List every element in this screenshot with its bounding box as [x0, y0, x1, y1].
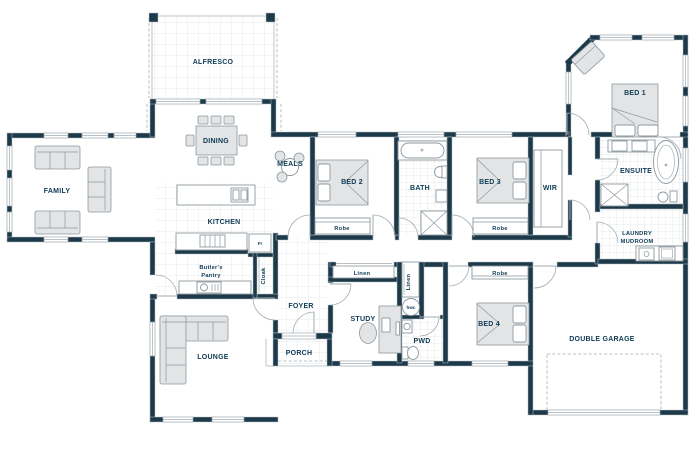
monitor	[396, 322, 400, 335]
label-linen-hall: Linen	[354, 271, 371, 277]
alfresco-tiles	[152, 16, 274, 100]
label-wir: WIR	[543, 185, 557, 192]
floor-plan-drawing: ALFRESCO DINING FAMILY MEALS KITCHEN But…	[0, 0, 690, 456]
pillow	[513, 162, 526, 179]
toilet	[408, 347, 419, 360]
label-study: STUDY	[351, 316, 376, 323]
chair	[224, 157, 234, 165]
office-chair	[360, 323, 377, 344]
label-double-garage: DOUBLE GARAGE	[569, 336, 635, 343]
label-laundry-2: MUDROOM	[621, 239, 654, 245]
chair	[198, 157, 208, 165]
label-robe-bed3: Robe	[492, 226, 508, 232]
label-bed3: BED 3	[479, 179, 501, 186]
pillow	[513, 306, 526, 323]
label-butlers-pantry-1: Butler's	[199, 265, 222, 271]
label-robe-bed2: Robe	[334, 226, 350, 232]
alfresco-post	[149, 13, 158, 22]
label-ensuite: ENSUITE	[620, 168, 652, 175]
laundry-sink	[639, 248, 654, 260]
pillow	[513, 325, 526, 342]
armchair	[571, 41, 605, 75]
bed2-door	[373, 215, 395, 237]
label-bed4: BED 4	[478, 321, 500, 328]
chair	[277, 172, 287, 182]
label-cloak: Cloak	[261, 267, 267, 285]
label-meals: MEALS	[277, 161, 303, 168]
label-linen-nook: Linen	[406, 273, 412, 290]
toilet	[658, 192, 668, 202]
pillow	[638, 125, 658, 136]
bed4-door	[449, 266, 469, 286]
label-bed2: BED 2	[341, 179, 363, 186]
keyboard	[382, 318, 390, 332]
label-robe-bed4: Robe	[492, 271, 508, 277]
bed3-door	[452, 215, 474, 237]
label-fridge: Fr	[258, 241, 263, 246]
cooktop	[200, 235, 225, 247]
sofa	[35, 211, 80, 234]
chair	[186, 135, 194, 146]
label-lounge: LOUNGE	[197, 354, 229, 361]
garage-door	[534, 266, 556, 288]
pillow	[615, 125, 635, 136]
label-kitchen: KITCHEN	[208, 219, 241, 226]
chair	[224, 116, 234, 124]
study-furniture	[360, 306, 402, 353]
label-dining: DINING	[203, 138, 229, 145]
chair	[211, 116, 221, 124]
sink	[632, 141, 647, 151]
pillow	[318, 184, 330, 201]
label-foyer: FOYER	[288, 303, 313, 310]
bed3-furniture	[473, 158, 529, 234]
wir-door	[570, 200, 590, 220]
chair	[211, 157, 221, 165]
label-bed1: BED 1	[624, 90, 646, 97]
label-hwc: hwc	[407, 305, 416, 310]
sofa	[35, 146, 80, 169]
chair	[275, 151, 285, 161]
pillow	[513, 182, 526, 199]
floor-plan-page: ALFRESCO DINING FAMILY MEALS KITCHEN But…	[0, 0, 690, 456]
label-porch: PORCH	[286, 350, 313, 357]
pillow	[318, 164, 330, 181]
sofa	[88, 167, 111, 212]
bed2-furniture	[315, 160, 370, 234]
label-butlers-pantry-2: Pantry	[201, 273, 221, 279]
study-door	[330, 284, 351, 305]
bath-cabinet	[436, 190, 447, 202]
laundry-fixtures	[636, 246, 683, 261]
foyer-tiles	[278, 237, 328, 333]
label-family: FAMILY	[44, 188, 71, 195]
label-laundry-1: LAUNDRY	[622, 231, 652, 237]
bed4-furniture	[472, 266, 529, 345]
label-alfresco: ALFRESCO	[193, 59, 234, 66]
alfresco-post	[266, 13, 275, 22]
lounge-door	[253, 298, 275, 320]
chair	[239, 135, 247, 146]
chair	[198, 116, 208, 124]
modular-sofa	[160, 316, 186, 384]
lounge-furniture	[160, 316, 228, 384]
garage-door-zone	[547, 354, 661, 411]
hall-kitchen-door	[288, 215, 310, 237]
label-bath: BATH	[410, 185, 430, 192]
label-pwd: PWD	[413, 338, 430, 345]
sink	[612, 141, 627, 151]
